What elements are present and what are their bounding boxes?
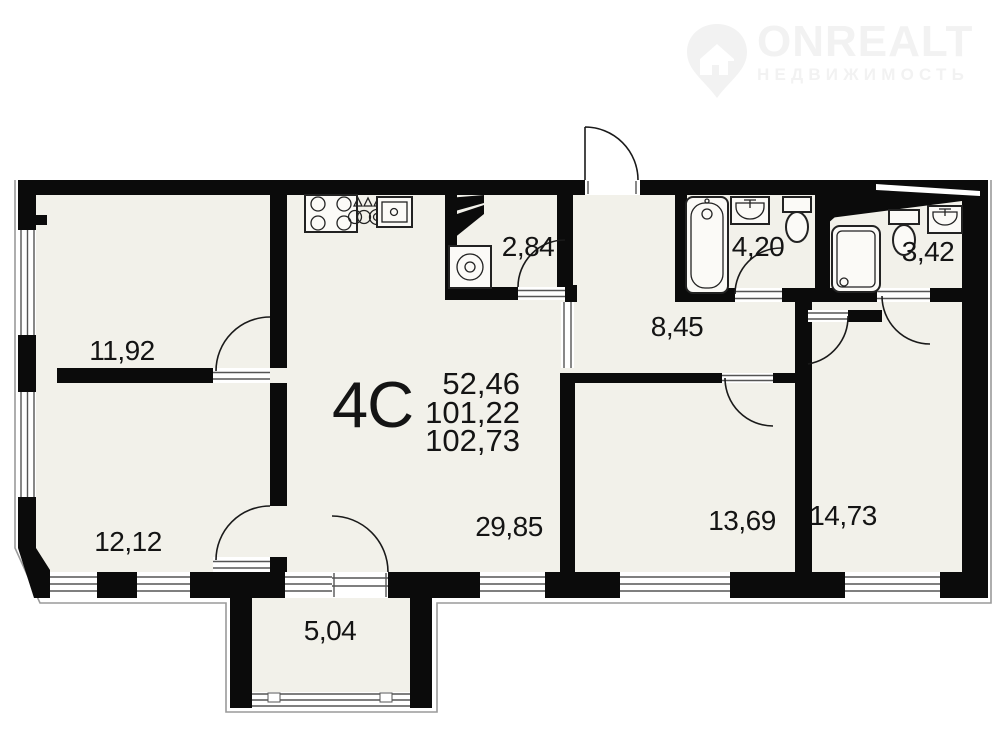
kitchen-sink-icon [377,197,412,227]
floor-plan [0,0,1000,750]
bathtub-icon [686,197,728,293]
onrealt-pin-icon [685,22,749,100]
entrance-door-arc [585,127,638,180]
onrealt-logo: ONREALT НЕДВИЖИМОСТЬ [685,20,985,85]
wash-basin-2-icon [928,206,962,233]
balcony-door [332,572,388,598]
logo-tagline: НЕДВИЖИМОСТЬ [757,65,985,85]
shower-cabin-icon [832,226,880,292]
toilet-icon [783,197,811,242]
balcony-rail [252,692,410,706]
wash-basin-icon [731,197,769,224]
logo-brand: ONREALT [757,20,985,64]
floor-plan-page: 4C 52,46 101,22 102,73 11,9212,122,844,2… [0,0,1000,750]
